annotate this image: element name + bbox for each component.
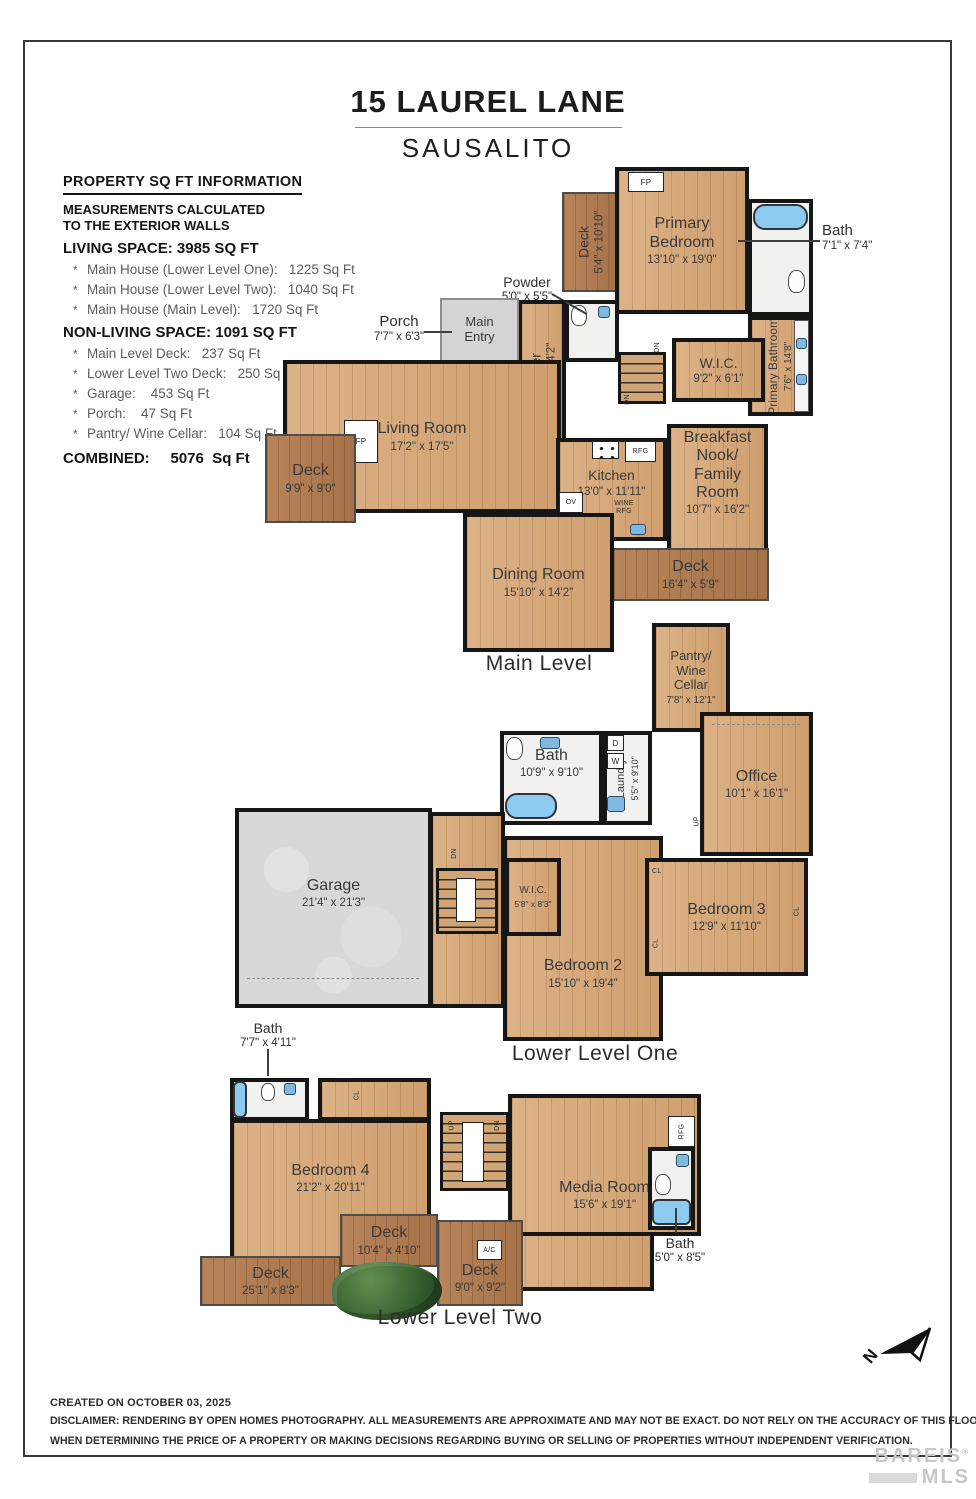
room-label: Deck bbox=[672, 558, 708, 576]
w-label: W bbox=[612, 757, 620, 766]
room-dims: 21'4" x 21'3" bbox=[302, 897, 365, 909]
room-dims: 7'8" x 12'1" bbox=[666, 695, 715, 706]
room-label: Primary Bathroom bbox=[767, 318, 781, 415]
stairs-dn-label: DN bbox=[624, 394, 631, 405]
room-lower1-wic: W.I.C. 5'8" x 8'3" bbox=[505, 858, 561, 936]
nonliving-item: *Main Level Deck: 237 Sq Ft bbox=[73, 346, 393, 361]
room-main-wic: W.I.C. 9'2" x 6'1" bbox=[672, 338, 765, 402]
room-dims: 21'2" x 20'11" bbox=[296, 1182, 365, 1194]
watermark-bar bbox=[869, 1473, 917, 1483]
nonliving-item-text: Main Level Deck: 237 Sq Ft bbox=[87, 346, 260, 361]
watermark-mls: MLS bbox=[922, 1466, 970, 1488]
living-item-text: Main House (Lower Level One): 1225 Sq Ft bbox=[87, 262, 355, 277]
vertical-label: Deck 5'4" x 10'10" bbox=[576, 210, 606, 273]
room-dims: 15'10" x 14'2" bbox=[504, 587, 573, 599]
porch-callout-line bbox=[424, 331, 452, 333]
bullet-glyph: * bbox=[73, 387, 87, 401]
vertical-label-wrap: Deck 5'4" x 10'10" bbox=[564, 194, 618, 290]
closet-label: CL bbox=[652, 939, 659, 949]
bullet-glyph: * bbox=[73, 407, 87, 421]
info-heading: PROPERTY SQ FT INFORMATION bbox=[63, 174, 302, 195]
living-item-text: Main House (Lower Level Two): 1040 Sq Ft bbox=[87, 282, 354, 297]
room-dims: 5'5" x 9'10" bbox=[630, 756, 640, 800]
room-label: Bath bbox=[640, 1235, 720, 1251]
nonliving-item-text: Garage: 453 Sq Ft bbox=[87, 386, 209, 401]
bathtub-icon bbox=[652, 1199, 691, 1225]
room-dims: 15'6" x 19'1" bbox=[573, 1199, 636, 1211]
compass-n-label: N bbox=[859, 1345, 881, 1367]
sink-icon bbox=[796, 338, 807, 349]
room-dims: 10'7" x 16'2" bbox=[686, 504, 749, 516]
ac-label: A/C bbox=[483, 1247, 496, 1254]
room-dims: 12'9" x 11'10" bbox=[692, 921, 761, 933]
fp-label: FP bbox=[641, 178, 652, 187]
watermark-line2: MLS bbox=[869, 1467, 970, 1488]
room-dims: 9'2" x 6'1" bbox=[693, 373, 743, 385]
closet-label: CL bbox=[353, 1091, 360, 1101]
room-label: Bath bbox=[822, 222, 912, 239]
watermark-bareis: BAREIS bbox=[875, 1445, 963, 1467]
porch-callout-label: Porch 7'7" x 6'3" bbox=[360, 313, 438, 343]
room-dims: 16'4" x 5'9" bbox=[662, 579, 719, 591]
room-label: Living Room bbox=[378, 420, 467, 438]
room-main-deck-right: Deck 16'4" x 5'9" bbox=[612, 548, 769, 601]
toilet-icon bbox=[788, 270, 805, 293]
room-dims: 9'9" x 9'0" bbox=[285, 483, 335, 495]
room-label: Bedroom 3 bbox=[687, 901, 765, 919]
room-label: Deck bbox=[576, 210, 592, 273]
garage-door-dash bbox=[247, 978, 419, 979]
room-label: Media Room bbox=[559, 1179, 650, 1197]
office-window-dash bbox=[712, 724, 800, 725]
stairs-up-label: UP bbox=[694, 816, 701, 826]
room-bedroom3: Bedroom 3 12'9" x 11'10" bbox=[645, 858, 808, 976]
north-compass-icon: N bbox=[858, 1324, 938, 1372]
washer-marker: W bbox=[607, 753, 624, 769]
d-label: D bbox=[612, 739, 618, 748]
toilet-icon bbox=[655, 1174, 671, 1195]
bareis-mls-watermark: BAREIS® MLS bbox=[869, 1446, 970, 1488]
bath4-callout-line bbox=[267, 1049, 269, 1076]
media-room-extension bbox=[508, 1232, 654, 1291]
room-label: Kitchen bbox=[588, 467, 635, 483]
room-dims: 7'1" x 7'4" bbox=[822, 240, 912, 252]
nonliving-space-heading: NON-LIVING SPACE: 1091 SQ FT bbox=[63, 324, 393, 341]
room-breakfast-nook: Breakfast Nook/ Family Room 10'7" x 16'2… bbox=[667, 424, 768, 557]
living-item-text: Main House (Main Level): 1720 Sq Ft bbox=[87, 302, 318, 317]
stairs-dn-label: DN bbox=[451, 848, 458, 859]
bath-right-callout-line bbox=[675, 1208, 677, 1233]
bullet-glyph: * bbox=[73, 283, 87, 297]
closet-label: CL bbox=[652, 868, 662, 875]
room-lower2-deck-lower: Deck 25'1" x 8'3" bbox=[200, 1256, 341, 1306]
page-subtitle: SAUSALITO bbox=[0, 133, 976, 164]
bath-callout-label: Bath 7'1" x 7'4" bbox=[822, 222, 912, 252]
ov-label: OV bbox=[566, 499, 577, 506]
room-label: Deck bbox=[292, 462, 328, 480]
room-label: Bedroom 4 bbox=[291, 1162, 369, 1180]
room-label: Garage bbox=[307, 877, 360, 895]
registered-mark: ® bbox=[962, 1447, 970, 1456]
room-label: Deck bbox=[252, 1265, 288, 1283]
sink-icon bbox=[540, 737, 560, 749]
room-dims: 7'6" x 14'8" bbox=[783, 318, 794, 415]
stairs-dn-label: DN bbox=[494, 1120, 501, 1131]
disclaimer-line2: WHEN DETERMINING THE PRICE OF A PROPERTY… bbox=[50, 1435, 913, 1447]
bathtub-icon bbox=[233, 1081, 247, 1118]
bullet-glyph: * bbox=[73, 303, 87, 317]
room-dims: 9'0" x 9'2" bbox=[455, 1282, 505, 1294]
toilet-icon bbox=[506, 737, 523, 760]
info-note-line1: MEASUREMENTS CALCULATED bbox=[63, 202, 393, 218]
room-dims: 5'4" x 10'10" bbox=[594, 210, 606, 273]
bullet-glyph: * bbox=[73, 427, 87, 441]
oven-marker: OV bbox=[559, 492, 583, 513]
room-office: Office 10'1" x 16'1" bbox=[700, 712, 813, 856]
room-dims: 15'10" x 19'4" bbox=[548, 978, 617, 990]
room-main-entry: Main Entry bbox=[440, 298, 519, 362]
living-item: *Main House (Lower Level Two): 1040 Sq F… bbox=[73, 282, 393, 297]
nonliving-item-text: Lower Level Two Deck: 250 Sq Ft bbox=[87, 366, 296, 381]
refrigerator-marker: RFG bbox=[668, 1116, 695, 1147]
bullet-glyph: * bbox=[73, 347, 87, 361]
room-label: Main Entry bbox=[464, 315, 494, 345]
dryer-marker: D bbox=[607, 735, 624, 751]
rfg-label: RFG bbox=[633, 448, 649, 455]
nonliving-item-text: Pantry/ Wine Cellar: 104 Sq Ft bbox=[87, 426, 277, 441]
room-dims: 10'9" x 9'10" bbox=[520, 767, 583, 779]
bath4-callout-label: Bath 7'7" x 4'11" bbox=[230, 1020, 306, 1049]
sink-icon bbox=[796, 374, 807, 385]
rfg-label: RFG bbox=[678, 1124, 685, 1140]
bathtub-icon bbox=[753, 204, 808, 230]
sink-icon bbox=[676, 1154, 689, 1167]
closet-label: CL bbox=[793, 907, 800, 917]
room-label: Breakfast Nook/ Family Room bbox=[671, 429, 764, 503]
stairs-up-label: UP bbox=[449, 1120, 456, 1130]
vanity-counter bbox=[794, 320, 809, 412]
room-dims: 13'0" x 11'11" bbox=[578, 486, 646, 498]
main-level-caption: Main Level bbox=[439, 652, 639, 676]
ac-unit-marker: A/C bbox=[477, 1240, 502, 1260]
room-label: Pantry/ Wine Cellar bbox=[670, 649, 711, 694]
stairs-dn-label: DN bbox=[654, 342, 661, 353]
fireplace-marker: FP bbox=[628, 172, 664, 192]
room-dims: 7'7" x 6'3" bbox=[360, 331, 438, 343]
bathtub-icon bbox=[505, 793, 557, 819]
living-item: *Main House (Lower Level One): 1225 Sq F… bbox=[73, 262, 393, 277]
bullet-glyph: * bbox=[73, 263, 87, 277]
title-divider bbox=[355, 127, 622, 128]
stairs-landing bbox=[456, 878, 476, 922]
room-label: W.I.C. bbox=[519, 885, 546, 897]
room-dims: 5'8" x 8'3" bbox=[514, 899, 551, 909]
room-dims: 10'4" x 4'10" bbox=[357, 1245, 420, 1257]
bath-right-callout-label: Bath 5'0" x 8'5" bbox=[640, 1235, 720, 1264]
floor-plan-page: 15 LAUREL LANE SAUSALITO PROPERTY SQ FT … bbox=[0, 0, 976, 1499]
room-lower2-deck-upper: Deck 10'4" x 4'10" bbox=[340, 1214, 438, 1267]
room-main-deck-left: Deck 9'9" x 9'0" bbox=[265, 434, 356, 523]
bath-callout-line bbox=[738, 240, 820, 242]
lower-level-two-caption: Lower Level Two bbox=[360, 1306, 560, 1330]
room-dims: 10'1" x 16'1" bbox=[725, 788, 788, 800]
room-dims: 5'0" x 8'5" bbox=[640, 1252, 720, 1264]
living-item: *Main House (Main Level): 1720 Sq Ft bbox=[73, 302, 393, 317]
vertical-label: Primary Bathroom 7'6" x 14'8" bbox=[767, 318, 794, 415]
room-dining-room: Dining Room 15'10" x 14'2" bbox=[463, 513, 614, 652]
bullet-glyph: * bbox=[73, 367, 87, 381]
room-label: W.I.C. bbox=[699, 355, 737, 371]
room-label: Deck bbox=[371, 1224, 407, 1242]
room-label: Bedroom 2 bbox=[544, 957, 622, 975]
nonliving-item-text: Porch: 47 Sq Ft bbox=[87, 406, 192, 421]
fp-label: FP bbox=[356, 437, 367, 446]
stove-icon bbox=[592, 441, 619, 459]
room-dims: 25'1" x 8'3" bbox=[242, 1285, 299, 1297]
room-lower2-deck-right: Deck 9'0" x 9'2" bbox=[437, 1220, 523, 1306]
room-label: Porch bbox=[360, 313, 438, 330]
room-label: Dining Room bbox=[492, 566, 584, 584]
sink-icon bbox=[598, 306, 610, 318]
page-title: 15 LAUREL LANE bbox=[0, 84, 976, 120]
room-label: Bath bbox=[535, 747, 568, 765]
refrigerator-marker: RFG bbox=[625, 441, 656, 462]
dishwasher-icon bbox=[630, 524, 646, 535]
lower-level-one-caption: Lower Level One bbox=[495, 1042, 695, 1066]
room-dims: 7'7" x 4'11" bbox=[230, 1037, 306, 1049]
room-label: Office bbox=[736, 768, 778, 786]
sink-icon bbox=[284, 1083, 296, 1095]
bedroom4-closet-strip bbox=[318, 1078, 431, 1121]
room-label: Primary Bedroom bbox=[650, 215, 715, 252]
room-label: Powder bbox=[482, 274, 572, 290]
stairs-landing bbox=[462, 1122, 484, 1182]
room-label: Deck bbox=[462, 1262, 498, 1280]
room-dims: 13'10" x 19'0" bbox=[647, 254, 716, 266]
disclaimer-line1: DISCLAIMER: RENDERING BY OPEN HOMES PHOT… bbox=[50, 1415, 976, 1427]
toilet-icon bbox=[261, 1083, 275, 1101]
info-note-line2: TO THE EXTERIOR WALLS bbox=[63, 218, 393, 234]
washer-icon bbox=[607, 796, 625, 812]
created-date: CREATED ON OCTOBER 03, 2025 bbox=[50, 1397, 231, 1409]
watermark-line1: BAREIS® bbox=[869, 1446, 970, 1467]
room-label: Bath bbox=[230, 1020, 306, 1036]
room-dims: 17'2" x 17'5" bbox=[390, 441, 453, 453]
living-space-heading: LIVING SPACE: 3985 SQ FT bbox=[63, 240, 393, 257]
